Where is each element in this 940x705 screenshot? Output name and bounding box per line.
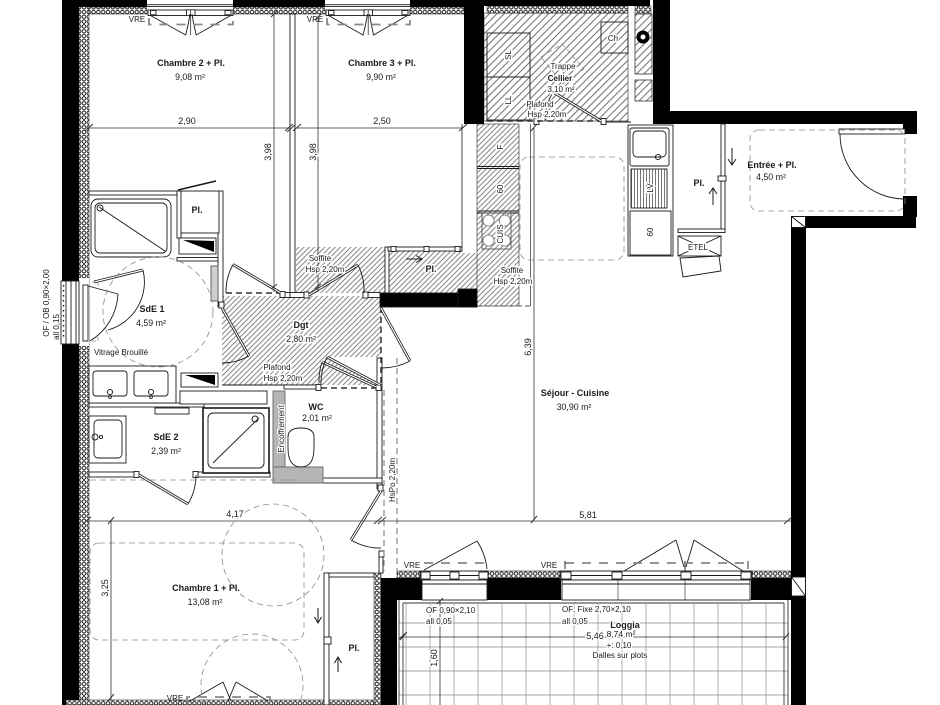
svg-text:VRE: VRE [541, 561, 557, 570]
svg-text:13,08 m²: 13,08 m² [188, 597, 223, 607]
svg-text:1,60: 1,60 [429, 649, 439, 667]
svg-text:Séjour - Cuisine: Séjour - Cuisine [541, 388, 610, 398]
svg-text:Pl.: Pl. [348, 643, 359, 653]
svg-text:3,10 m²: 3,10 m² [547, 85, 574, 94]
svg-text:SdE 2: SdE 2 [153, 432, 178, 442]
svg-text:Dgt: Dgt [294, 320, 309, 330]
svg-text:Pl.: Pl. [693, 178, 704, 188]
svg-text:VRE: VRE [167, 694, 183, 703]
svg-text:all 0,05: all 0,05 [562, 617, 588, 626]
svg-text:SL: SL [504, 50, 513, 60]
svg-text:Soffite: Soffite [309, 254, 332, 263]
svg-text:ETEL: ETEL [688, 243, 709, 252]
svg-text:VRE: VRE [307, 15, 323, 24]
svg-text:5,81: 5,81 [579, 510, 597, 520]
svg-text:VRE: VRE [129, 15, 145, 24]
svg-text:Cellier: Cellier [548, 74, 572, 83]
svg-text:Soffite: Soffite [501, 266, 524, 275]
svg-text:Pl.: Pl. [191, 205, 202, 215]
svg-text:2,90: 2,90 [178, 116, 196, 126]
svg-text:Hsp 2,20m: Hsp 2,20m [494, 277, 533, 286]
svg-text:6,39: 6,39 [523, 338, 533, 356]
svg-text:30,90 m²: 30,90 m² [557, 402, 592, 412]
svg-text:3,98: 3,98 [308, 143, 318, 161]
svg-text:5,46: 5,46 [586, 631, 604, 641]
svg-text:Hsp 2,20m: Hsp 2,20m [528, 110, 567, 119]
svg-text:4,17: 4,17 [226, 509, 244, 519]
svg-text:CUIS: CUIS [496, 224, 505, 243]
svg-text:all 0,15: all 0,15 [52, 314, 61, 340]
svg-text:Hsp 2,20m: Hsp 2,20m [306, 265, 345, 274]
svg-text:OF; Fixe 2,70×2,10: OF; Fixe 2,70×2,10 [562, 605, 631, 614]
svg-text:HsPo 2,20m: HsPo 2,20m [388, 458, 397, 502]
svg-text:Chambre 1 + Pl.: Chambre 1 + Pl. [172, 583, 240, 593]
svg-text:Encoffrement: Encoffrement [277, 405, 286, 453]
svg-text:SdE 1: SdE 1 [139, 304, 164, 314]
svg-text:Plafond: Plafond [263, 363, 290, 372]
svg-text:2,80 m²: 2,80 m² [286, 334, 316, 344]
svg-text:Trappe: Trappe [550, 62, 576, 71]
svg-text:F: F [496, 144, 505, 149]
svg-text:+: 0,10: +: 0,10 [607, 641, 632, 650]
svg-text:Plafond: Plafond [526, 100, 553, 109]
svg-text:Vitrage Brouillé: Vitrage Brouillé [94, 348, 149, 357]
svg-text:OF / OB 0,90×2,00: OF / OB 0,90×2,00 [42, 269, 51, 337]
svg-text:9,90 m²: 9,90 m² [366, 72, 396, 82]
svg-text:LL: LL [504, 95, 513, 104]
svg-text:OF 0,90×2,10: OF 0,90×2,10 [426, 606, 476, 615]
svg-text:2,01 m²: 2,01 m² [302, 413, 332, 423]
svg-text:Chambre 2 + Pl.: Chambre 2 + Pl. [157, 58, 225, 68]
svg-text:Chambre 3 + Pl.: Chambre 3 + Pl. [348, 58, 416, 68]
svg-text:LV: LV [646, 183, 655, 193]
svg-text:3,98: 3,98 [263, 143, 273, 161]
svg-text:8,74 m²: 8,74 m² [607, 629, 636, 639]
svg-text:Dalles sur plots: Dalles sur plots [593, 651, 648, 660]
svg-text:Hsp 2,20m: Hsp 2,20m [264, 374, 303, 383]
svg-text:WC: WC [309, 402, 324, 412]
svg-text:2,50: 2,50 [373, 116, 391, 126]
svg-text:VRE: VRE [404, 561, 420, 570]
svg-text:Pl.: Pl. [425, 264, 436, 274]
svg-text:all 0,05: all 0,05 [426, 617, 452, 626]
svg-text:9,08 m²: 9,08 m² [175, 72, 205, 82]
svg-text:3,25: 3,25 [100, 579, 110, 597]
svg-text:Ch: Ch [608, 34, 618, 43]
svg-text:4,59 m²: 4,59 m² [136, 318, 166, 328]
svg-text:2,39 m²: 2,39 m² [151, 446, 181, 456]
svg-text:60: 60 [496, 184, 505, 193]
svg-text:60: 60 [646, 227, 655, 236]
svg-text:Entrée + Pl.: Entrée + Pl. [747, 160, 796, 170]
svg-text:4,50 m²: 4,50 m² [756, 172, 786, 182]
